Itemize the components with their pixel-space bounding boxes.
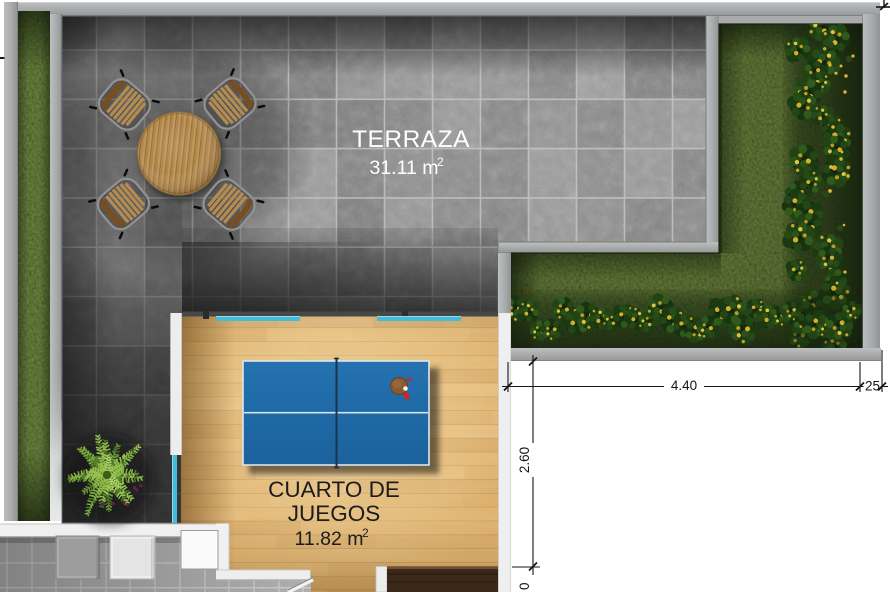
svg-text:2: 2 (362, 526, 369, 540)
svg-text:4.40: 4.40 (671, 378, 697, 393)
svg-text:0: 0 (517, 582, 532, 590)
svg-text:2.60: 2.60 (517, 447, 532, 473)
svg-text:25: 25 (865, 379, 880, 394)
svg-text:11.82 m: 11.82 m (294, 528, 363, 550)
svg-text:JUEGOS: JUEGOS (288, 501, 381, 526)
svg-text:CUARTO DE: CUARTO DE (268, 477, 400, 502)
svg-text:TERRAZA: TERRAZA (352, 126, 470, 153)
svg-text:2: 2 (437, 155, 444, 169)
svg-text:31.11 m: 31.11 m (369, 157, 438, 179)
